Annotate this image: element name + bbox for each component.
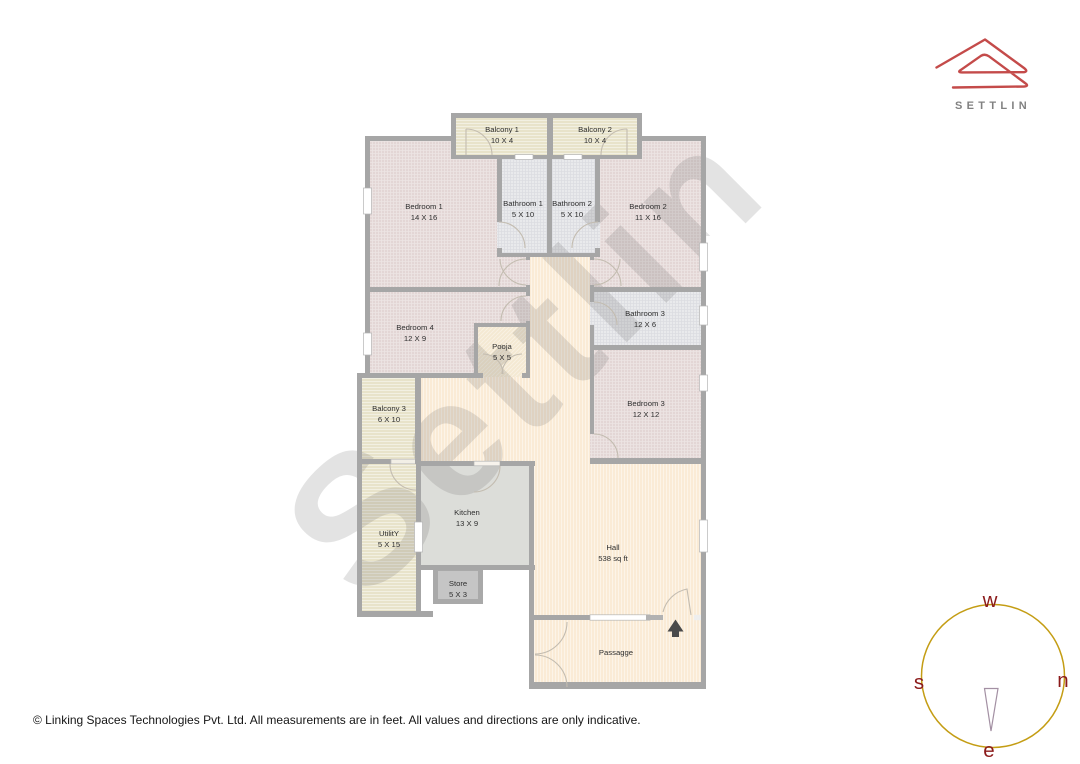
svg-text:10 X 4: 10 X 4 (584, 136, 607, 145)
svg-text:12 X 6: 12 X 6 (634, 320, 656, 329)
svg-text:Hall: Hall (606, 543, 620, 552)
svg-text:Bedroom 2: Bedroom 2 (629, 202, 667, 211)
svg-text:Bathroom 2: Bathroom 2 (552, 199, 592, 208)
svg-text:Bathroom 3: Bathroom 3 (625, 309, 665, 318)
svg-text:Bedroom 1: Bedroom 1 (405, 202, 443, 211)
svg-text:5 X 5: 5 X 5 (493, 353, 511, 362)
svg-text:e: e (983, 739, 994, 762)
svg-text:6 X 10: 6 X 10 (378, 415, 400, 424)
svg-text:5 X 10: 5 X 10 (512, 210, 534, 219)
svg-text:Balcony 3: Balcony 3 (372, 404, 406, 413)
svg-text:Bedroom 3: Bedroom 3 (627, 399, 665, 408)
svg-text:Passagge: Passagge (599, 648, 633, 657)
svg-text:14 X 16: 14 X 16 (411, 213, 438, 222)
svg-text:w: w (982, 589, 998, 612)
svg-text:5 X 10: 5 X 10 (561, 210, 583, 219)
svg-text:SETTLIN: SETTLIN (955, 100, 1031, 112)
svg-text:© Linking Spaces Technologies: © Linking Spaces Technologies Pvt. Ltd. … (33, 713, 641, 727)
svg-text:Store: Store (449, 579, 467, 588)
svg-text:5 X 15: 5 X 15 (378, 540, 400, 549)
svg-text:538 sq ft: 538 sq ft (598, 554, 628, 563)
svg-text:Balcony 1: Balcony 1 (485, 125, 519, 134)
svg-text:5 X 3: 5 X 3 (449, 590, 467, 599)
svg-text:Balcony 2: Balcony 2 (578, 125, 612, 134)
svg-text:UtilitY: UtilitY (379, 529, 399, 538)
svg-text:s: s (914, 671, 924, 694)
svg-text:13 X 9: 13 X 9 (456, 519, 478, 528)
svg-text:10 X 4: 10 X 4 (491, 136, 514, 145)
svg-text:Bathroom 1: Bathroom 1 (503, 199, 543, 208)
svg-text:11 X 16: 11 X 16 (635, 213, 661, 222)
svg-text:Bedroom 4: Bedroom 4 (396, 323, 434, 332)
svg-text:n: n (1057, 669, 1068, 692)
svg-text:12 X 9: 12 X 9 (404, 334, 426, 343)
svg-text:Pooja: Pooja (492, 342, 512, 351)
svg-text:12 X 12: 12 X 12 (633, 410, 660, 419)
svg-text:Kitchen: Kitchen (454, 508, 480, 517)
